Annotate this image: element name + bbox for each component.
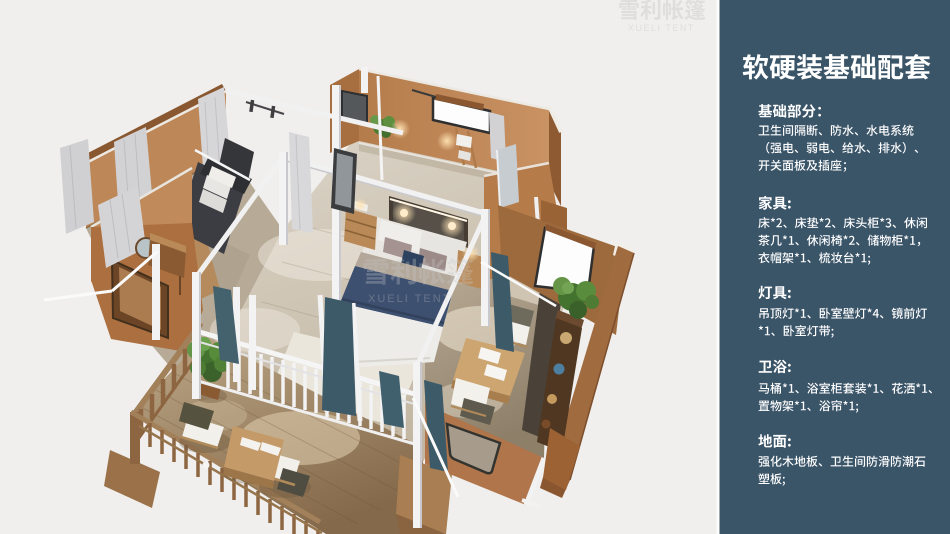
svg-text:XUELI TENT: XUELI TENT	[628, 23, 695, 33]
svg-text:XUELI TENT: XUELI TENT	[368, 293, 451, 305]
